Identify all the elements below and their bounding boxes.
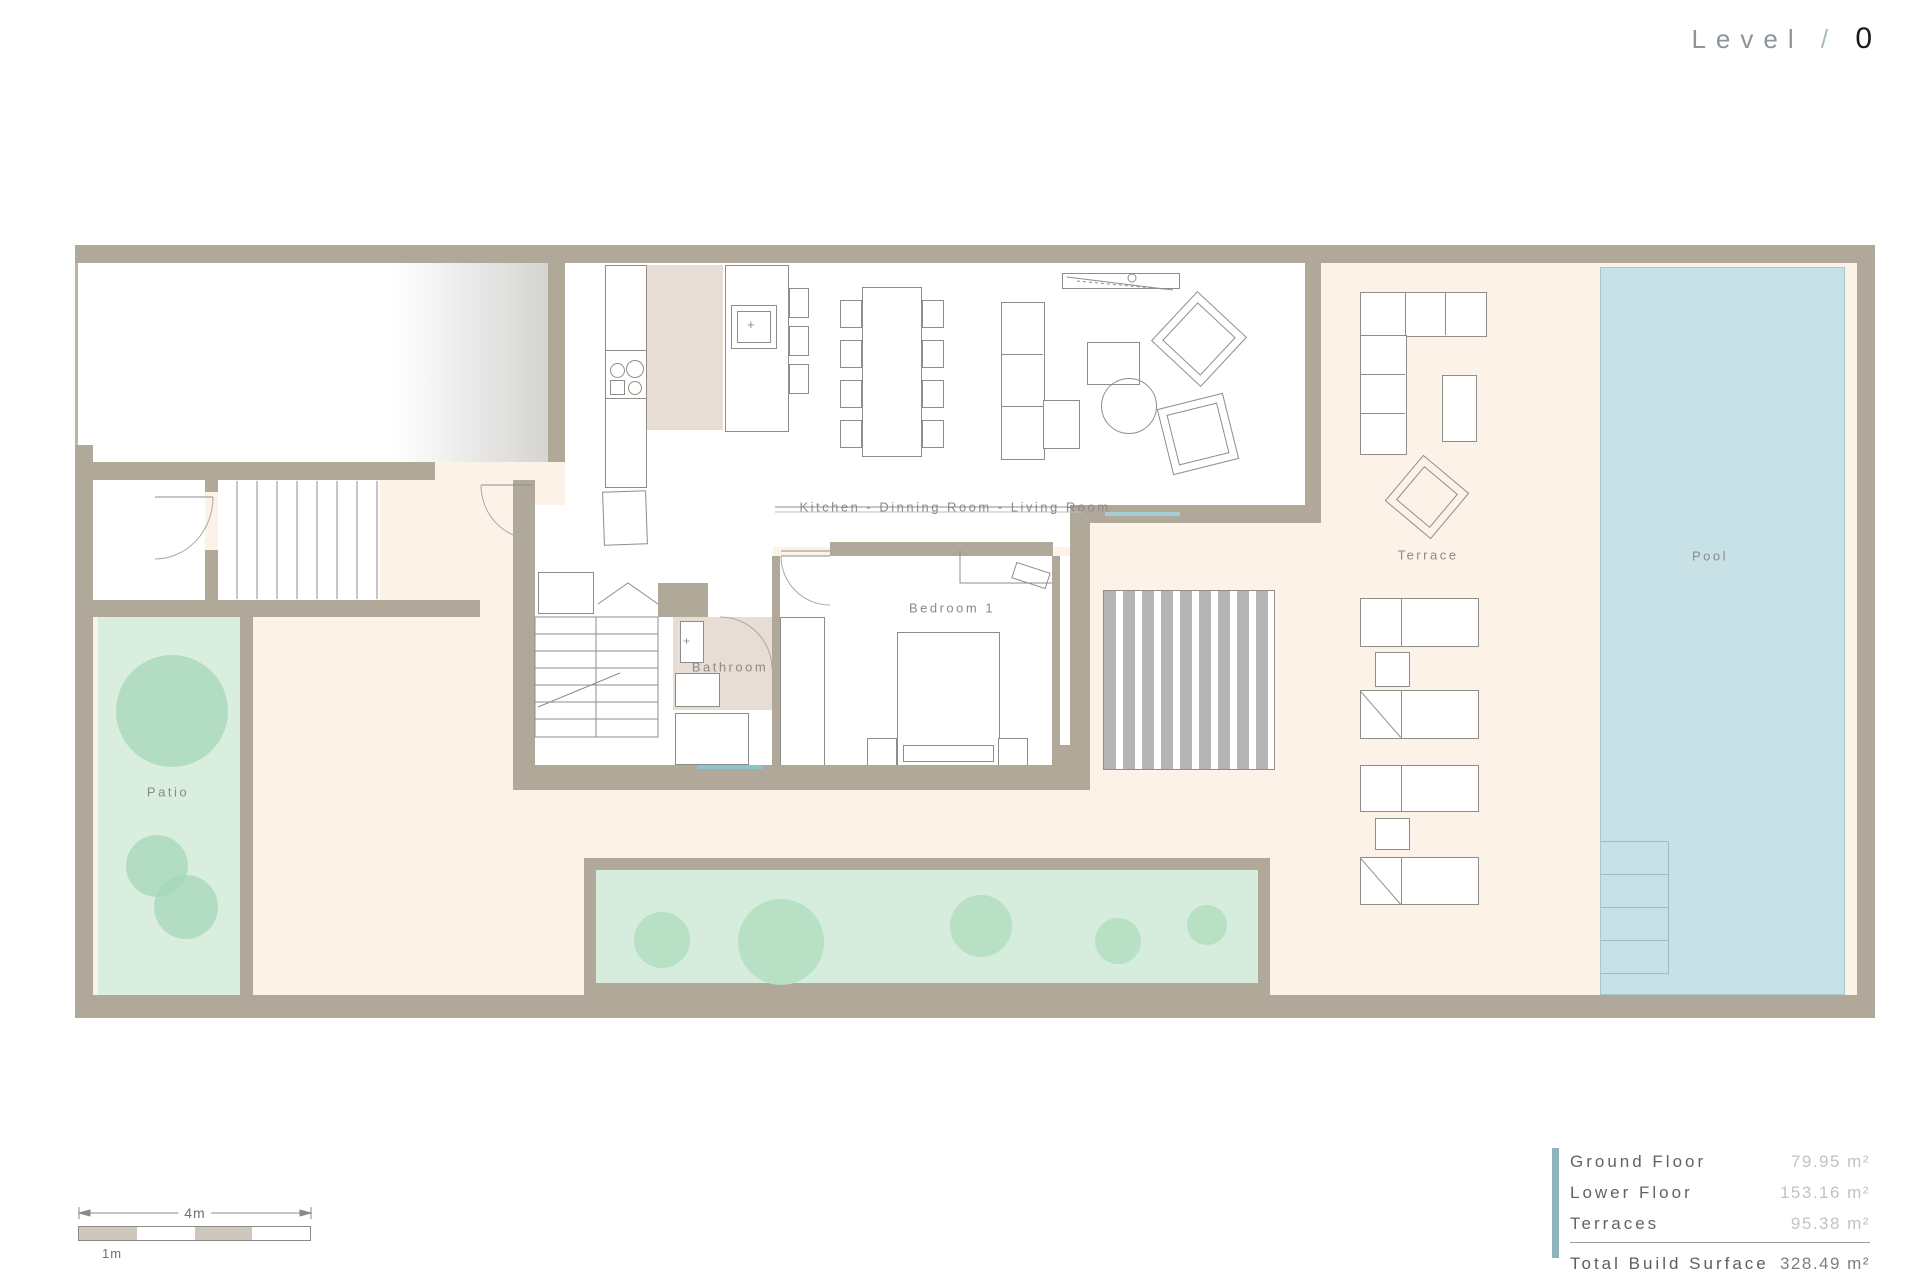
bar-stool <box>789 364 809 394</box>
wall <box>658 583 708 617</box>
sofa-seam <box>1405 292 1406 335</box>
bush <box>738 899 824 985</box>
fridge <box>602 490 648 546</box>
scale-segment <box>79 1227 137 1240</box>
area-label: Lower Floor <box>1570 1177 1693 1208</box>
dining-chair <box>922 380 944 408</box>
pool <box>1600 267 1845 995</box>
wall <box>75 462 435 480</box>
faucet-icon: + <box>683 634 690 648</box>
wall <box>772 556 780 765</box>
wall <box>1070 505 1090 790</box>
room-label-terrace: Terrace <box>1398 548 1459 563</box>
sun-lounger <box>1360 690 1479 739</box>
dining-chair <box>840 380 862 408</box>
dining-chair <box>840 300 862 328</box>
hall-closet <box>538 572 594 614</box>
wall <box>75 995 1875 1018</box>
burner <box>628 381 642 395</box>
lounger-backrest <box>1360 691 1401 738</box>
accent-bar <box>1552 1148 1559 1258</box>
table-divider <box>1570 1242 1870 1243</box>
floor-vestibule <box>93 480 205 600</box>
level-label: Level <box>1691 24 1803 54</box>
wall <box>205 462 218 492</box>
sun-lounger <box>1360 598 1479 647</box>
sofa-seam <box>1001 406 1043 407</box>
dining-chair <box>922 340 944 368</box>
scale-bar: 4m 1m <box>78 1204 312 1264</box>
scale-segment <box>137 1227 195 1240</box>
bush <box>1187 905 1227 945</box>
room-label-bedroom: Bedroom 1 <box>909 601 995 616</box>
planter <box>596 870 1258 983</box>
side-table <box>1375 818 1410 850</box>
nightstand <box>998 738 1028 767</box>
scale-segment <box>195 1227 253 1240</box>
area-value: 79.95 m² <box>1791 1146 1870 1177</box>
room-label-bathroom: Bathroom <box>692 660 768 675</box>
floor-plan: + + <box>75 245 1875 1018</box>
table-total-row: Total Build Surface 328.49 m² <box>1570 1248 1870 1279</box>
level-separator: / <box>1821 24 1838 54</box>
bush <box>1095 918 1141 964</box>
terrace-table <box>1442 375 1477 442</box>
terrace-sofa <box>1360 292 1487 337</box>
wall <box>240 617 253 995</box>
room-label-pool: Pool <box>1692 549 1728 564</box>
bush <box>634 912 690 968</box>
floor-exterior-stairs <box>218 480 380 600</box>
level-number: 0 <box>1855 22 1874 55</box>
level-indicator: Level / 0 <box>1691 22 1874 56</box>
pouf <box>1101 378 1157 434</box>
wall <box>205 550 218 600</box>
sofa-chaise <box>1043 400 1080 449</box>
area-label: Terraces <box>1570 1208 1659 1239</box>
shower <box>675 713 749 765</box>
area-value: 95.38 m² <box>1791 1208 1870 1239</box>
dining-table <box>862 287 922 457</box>
sofa-seam <box>1001 354 1043 355</box>
terrace-sofa <box>1360 335 1407 455</box>
table-row: Ground Floor 79.95 m² <box>1570 1146 1870 1177</box>
bed-footboard <box>903 745 994 762</box>
wall <box>75 245 1875 263</box>
scale-unit-label: 1m <box>102 1246 122 1261</box>
sun-lounger <box>1360 857 1479 905</box>
wall <box>75 263 78 462</box>
wall <box>1857 245 1875 1018</box>
total-label: Total Build Surface <box>1570 1248 1769 1279</box>
burner <box>610 363 625 378</box>
sofa-seam <box>1360 374 1405 375</box>
kitchen-tile <box>645 265 723 430</box>
room-label-patio: Patio <box>147 785 189 800</box>
terrace-chair <box>1385 455 1470 540</box>
sun-lounger <box>1360 765 1479 812</box>
dining-chair <box>840 340 862 368</box>
areas-table: Ground Floor 79.95 m² Lower Floor 153.16… <box>1552 1146 1870 1279</box>
wall <box>513 765 1090 790</box>
area-value: 153.16 m² <box>1780 1177 1870 1208</box>
faucet-icon: + <box>747 317 755 332</box>
wall <box>830 542 1053 556</box>
wall <box>1052 745 1070 765</box>
side-table <box>1375 652 1410 687</box>
toilet <box>675 673 720 707</box>
total-value: 328.49 m² <box>1780 1248 1870 1279</box>
area-label: Ground Floor <box>1570 1146 1706 1177</box>
bedroom-window-strip <box>1060 556 1070 745</box>
tv-console <box>1062 273 1180 289</box>
floor-interior-stairs <box>535 617 673 765</box>
wall <box>75 445 93 1000</box>
tree <box>154 875 218 939</box>
wall <box>75 600 480 617</box>
wall <box>1052 556 1060 745</box>
wall <box>548 263 565 462</box>
scale-segment <box>252 1227 310 1240</box>
sofa-seam <box>1445 292 1446 335</box>
bed <box>897 632 1000 767</box>
wall <box>513 480 535 790</box>
tree <box>116 655 228 767</box>
dining-chair <box>922 420 944 448</box>
scale-segments <box>78 1226 311 1241</box>
dining-chair <box>922 300 944 328</box>
wall <box>1085 505 1321 523</box>
lounger-backrest <box>1360 858 1401 905</box>
pool-steps <box>1601 841 1669 975</box>
bar-stool <box>789 288 809 318</box>
kitchen-counter <box>605 265 647 352</box>
pergola-louvers <box>1103 590 1275 770</box>
bush <box>950 895 1012 957</box>
sofa-seam <box>1360 413 1405 414</box>
bar-stool <box>789 326 809 356</box>
nightstand <box>867 738 897 767</box>
wall <box>1305 263 1321 505</box>
table-row: Lower Floor 153.16 m² <box>1570 1177 1870 1208</box>
burner <box>626 360 644 378</box>
wardrobe <box>780 617 825 767</box>
sofa <box>1001 302 1045 460</box>
table-row: Terraces 95.38 m² <box>1570 1208 1870 1239</box>
driveway-ramp-gradient <box>395 263 548 462</box>
burner <box>610 380 625 395</box>
scale-total-label: 4m <box>178 1205 211 1221</box>
room-label-kitchen-living: Kitchen - Dinning Room - Living Room <box>799 500 1110 515</box>
stove <box>605 350 647 400</box>
kitchen-counter <box>605 398 647 488</box>
dining-chair <box>840 420 862 448</box>
